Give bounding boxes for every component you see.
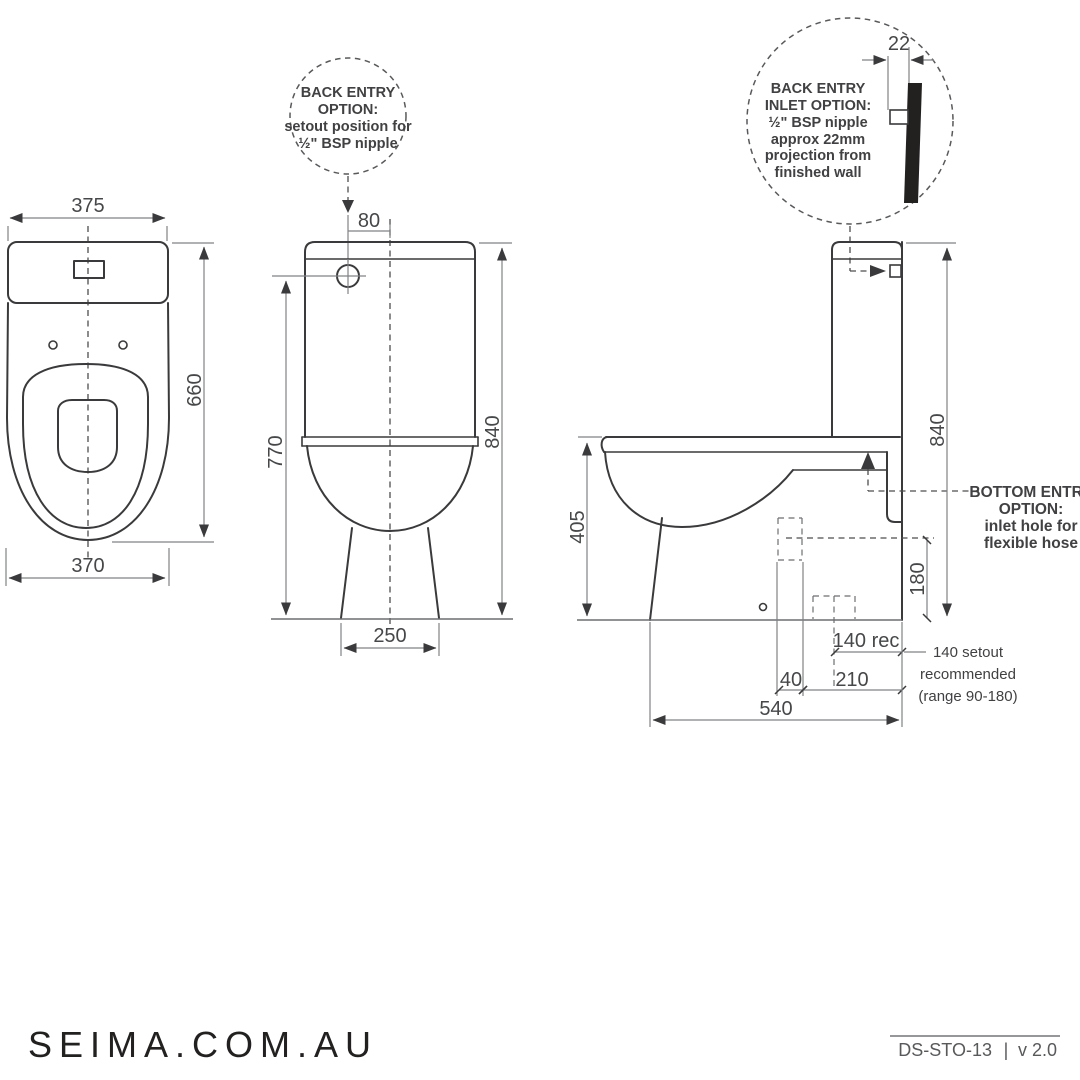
- dim-label-405: 405: [567, 510, 589, 543]
- inlet-leader-arrow: [870, 265, 886, 277]
- dim-label-140rec: 140 rec: [833, 630, 900, 652]
- setout-note-line-1: 140 setout: [933, 644, 1004, 661]
- bottom-entry-line-4: flexible hose: [984, 535, 1078, 552]
- dim-label-540: 540: [759, 698, 792, 720]
- back-inlet-line-6: finished wall: [774, 165, 861, 181]
- bottom-entry-arrow: [861, 452, 875, 469]
- finished-wall: [904, 83, 922, 203]
- bottom-entry-line-3: inlet hole for: [985, 518, 1078, 535]
- back-entry-line-1: BACK ENTRY: [301, 85, 396, 101]
- doc-separator: |: [1004, 1040, 1009, 1060]
- dim-label-660: 660: [184, 373, 206, 406]
- pedestal-side-front: [650, 518, 662, 620]
- technical-drawing: 375 660 370 BACK ENTRY OPTION: setout po…: [0, 0, 1080, 1080]
- back-entry-line-4: ½" BSP nipple: [298, 136, 397, 152]
- dim-label-770: 770: [265, 435, 287, 468]
- footer: SEIMA.COM.AU DS-STO-13 | v 2.0: [28, 1024, 1060, 1065]
- dim-label-22: 22: [888, 33, 910, 55]
- spec-sheet-page: 375 660 370 BACK ENTRY OPTION: setout po…: [0, 0, 1080, 1080]
- dim-label-40: 40: [780, 669, 802, 691]
- flush-button: [74, 261, 104, 278]
- dim-label-80: 80: [358, 210, 380, 232]
- hidden-trap-outline: [778, 518, 802, 560]
- dim-label-840-front: 840: [482, 415, 504, 448]
- back-inlet-line-5: projection from: [765, 148, 871, 164]
- seat-hinge-hole-left: [49, 341, 57, 349]
- bottom-entry-line-1: BOTTOM ENTRY: [969, 484, 1080, 501]
- setout-note-line-2: recommended: [920, 666, 1016, 683]
- pedestal-right-edge: [428, 528, 439, 618]
- dim-label-375: 375: [71, 195, 104, 217]
- seat-hinge-hole-right: [119, 341, 127, 349]
- callout-leader-arrow: [342, 200, 354, 213]
- dim-label-180: 180: [907, 562, 929, 595]
- setout-note-line-3: (range 90-180): [918, 688, 1017, 705]
- dim-label-210: 210: [835, 669, 868, 691]
- back-entry-line-3: setout position for: [284, 119, 412, 135]
- bowl-side-outline: [605, 452, 793, 527]
- back-inlet-line-1: BACK ENTRY: [771, 81, 866, 97]
- pan-back-recess: [887, 452, 902, 522]
- bsp-nipple: [890, 110, 908, 124]
- doc-version: v 2.0: [1018, 1040, 1057, 1060]
- seat-outline: [23, 364, 148, 528]
- back-inlet-line-3: ½" BSP nipple: [768, 115, 867, 131]
- front-view: BACK ENTRY OPTION: setout position for ½…: [265, 58, 513, 656]
- brand-website: SEIMA.COM.AU: [28, 1024, 378, 1065]
- dim-label-250: 250: [373, 625, 406, 647]
- seat-side-nose: [602, 437, 607, 452]
- dim-label-370: 370: [71, 555, 104, 577]
- doc-code: DS-STO-13: [898, 1040, 992, 1060]
- bottom-entry-line-2: OPTION:: [999, 501, 1064, 518]
- dim-label-840-side: 840: [927, 413, 949, 446]
- top-view: 375 660 370: [6, 195, 214, 586]
- pan-fixing-hole: [760, 604, 767, 611]
- back-entry-line-2: OPTION:: [318, 102, 378, 118]
- pedestal-left-edge: [341, 528, 352, 618]
- back-inlet-line-2: INLET OPTION:: [765, 98, 871, 114]
- back-inlet-port: [890, 265, 901, 277]
- side-view: BACK ENTRY INLET OPTION: ½" BSP nipple a…: [567, 18, 1080, 727]
- back-inlet-line-4: approx 22mm: [771, 132, 865, 148]
